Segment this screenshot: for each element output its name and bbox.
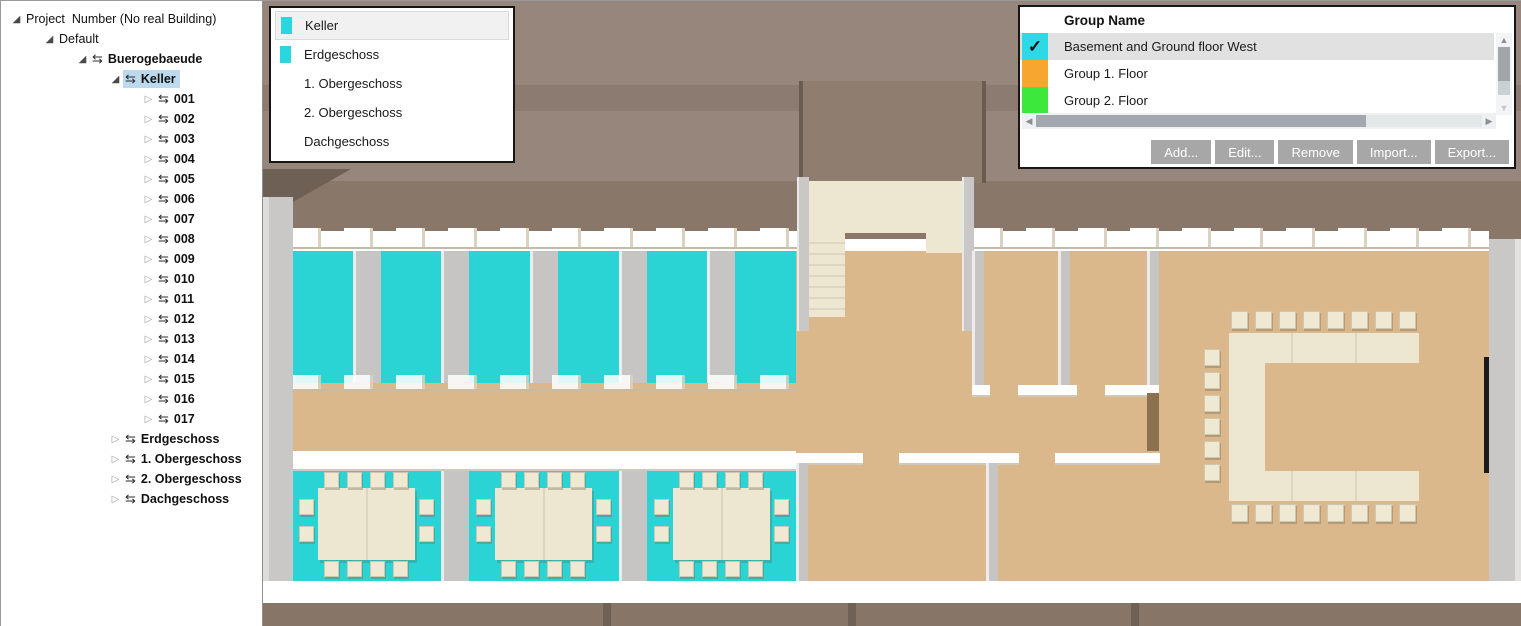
app-window: ◢Project Number (No real Building)◢Defau…: [0, 0, 1521, 626]
tree-item[interactable]: ▷⇆010: [1, 269, 262, 289]
tree-item[interactable]: ▷⇆Erdgeschoss: [1, 429, 262, 449]
chair: [1327, 504, 1344, 522]
tree-item-label: Project Number (No real Building): [26, 12, 216, 26]
tree-item-row[interactable]: ⇆006: [156, 190, 199, 208]
scroll-up-icon[interactable]: ▲: [1500, 33, 1509, 47]
tree-item-label: 007: [174, 212, 195, 226]
floor-label: 2. Obergeschoss: [304, 105, 402, 120]
conference-table: [1229, 471, 1419, 501]
chair: [1231, 504, 1248, 522]
right-exterior-wall: [1489, 239, 1521, 603]
tree-item-row[interactable]: Default: [57, 31, 103, 47]
swap-arrows-icon: ⇆: [158, 131, 169, 147]
staircase-steps: [809, 233, 845, 317]
chair: [1204, 372, 1220, 389]
floor-color-swatch: [280, 133, 291, 150]
collapsed-icon[interactable]: ▷: [108, 454, 123, 465]
swap-arrows-icon: ⇆: [92, 51, 103, 67]
floor-color-swatch: [280, 46, 291, 63]
tree-item-label: 2. Obergeschoss: [141, 472, 242, 486]
tree-item-row[interactable]: ⇆007: [156, 210, 199, 228]
wall: [441, 251, 469, 383]
vertical-scrollbar[interactable]: ▲ ▼: [1496, 33, 1512, 115]
wall: [353, 251, 381, 383]
chair: [596, 499, 611, 515]
chair: [1399, 311, 1416, 329]
tree-item-row[interactable]: ⇆Erdgeschoss: [123, 430, 223, 448]
chair: [347, 472, 362, 488]
swap-arrows-icon: ⇆: [158, 111, 169, 127]
project-tree: ◢Project Number (No real Building)◢Defau…: [1, 1, 263, 626]
tree-item[interactable]: ▷⇆009: [1, 249, 262, 269]
tree-item[interactable]: ◢⇆Keller: [1, 69, 262, 89]
tree-item-label: 002: [174, 112, 195, 126]
collapsed-icon[interactable]: ▷: [141, 234, 156, 245]
tree-item[interactable]: ▷⇆Dachgeschoss: [1, 489, 262, 509]
collapsed-icon[interactable]: ▷: [141, 94, 156, 105]
swap-arrows-icon: ⇆: [158, 271, 169, 287]
tree-item[interactable]: ▷⇆017: [1, 409, 262, 429]
chair: [748, 472, 763, 488]
tree-item-row[interactable]: ⇆Dachgeschoss: [123, 490, 233, 508]
tree-item-row[interactable]: ⇆Buerogebaeude: [90, 50, 206, 68]
swap-arrows-icon: ⇆: [158, 311, 169, 327]
scroll-right-icon[interactable]: ▶: [1482, 116, 1496, 127]
chair: [393, 472, 408, 488]
tree-item-label: Buerogebaeude: [108, 52, 202, 66]
expanded-icon[interactable]: ◢: [108, 74, 123, 85]
tree-item[interactable]: ▷⇆007: [1, 209, 262, 229]
expanded-icon[interactable]: ◢: [42, 34, 57, 45]
chair: [1279, 311, 1296, 329]
tree-item-label: Keller: [141, 72, 176, 86]
swap-arrows-icon: ⇆: [158, 151, 169, 167]
swap-arrows-icon: ⇆: [125, 431, 136, 447]
left-exterior-wall: [263, 197, 293, 613]
tree-item-label: 010: [174, 272, 195, 286]
collapsed-icon[interactable]: ▷: [108, 494, 123, 505]
chair: [1204, 464, 1220, 481]
chair: [1303, 311, 1320, 329]
room-highlighted[interactable]: [735, 251, 796, 383]
staircase-landing: [809, 181, 962, 233]
chair: [1303, 504, 1320, 522]
bottom-window-wall: [263, 581, 1521, 603]
chair: [1375, 311, 1392, 329]
tree-item[interactable]: ▷⇆015: [1, 369, 262, 389]
tree-item[interactable]: ◢⇆Buerogebaeude: [1, 49, 262, 69]
tree-item-label: 003: [174, 132, 195, 146]
group-label: Basement and Ground floor West: [1064, 39, 1257, 54]
chair: [774, 499, 789, 515]
door-opening: [1077, 385, 1105, 399]
door-opening: [863, 453, 899, 467]
chair: [679, 472, 694, 488]
tree-item-label: 017: [174, 412, 195, 426]
chair: [547, 472, 562, 488]
chair: [679, 561, 694, 577]
tree-item-label: 008: [174, 232, 195, 246]
chair: [324, 561, 339, 577]
collapsed-icon[interactable]: ▷: [141, 194, 156, 205]
import-button[interactable]: Import...: [1357, 140, 1431, 164]
swap-arrows-icon: ⇆: [125, 71, 136, 87]
chair: [1399, 504, 1416, 522]
swap-arrows-icon: ⇆: [158, 211, 169, 227]
tree-item-label: 005: [174, 172, 195, 186]
horizontal-scrollbar[interactable]: ◀ ▶: [1022, 113, 1496, 129]
tree-item[interactable]: ▷⇆001: [1, 89, 262, 109]
wall: [986, 463, 998, 581]
wall-seam: [848, 603, 856, 626]
wall: [619, 251, 647, 383]
chair: [774, 526, 789, 542]
chair: [476, 526, 491, 542]
tree-item-row[interactable]: ⇆2. Obergeschoss: [123, 470, 246, 488]
group-color-swatch: [1022, 60, 1048, 87]
tree-item-label: 015: [174, 372, 195, 386]
collapsed-icon[interactable]: ▷: [141, 374, 156, 385]
meeting-rooms-row: [292, 471, 796, 581]
edit-button[interactable]: Edit...: [1215, 140, 1274, 164]
meeting-table: [318, 488, 415, 560]
chair: [725, 561, 740, 577]
room-highlighted[interactable]: [292, 251, 353, 383]
chair: [1204, 349, 1220, 366]
expanded-icon[interactable]: ◢: [9, 14, 24, 25]
groups-panel: Group Name ✓Basement and Ground floor We…: [1018, 5, 1516, 169]
swap-arrows-icon: ⇆: [125, 491, 136, 507]
window-sills: [292, 228, 797, 249]
floor-color-swatch: [280, 104, 291, 121]
tree-item-label: 009: [174, 252, 195, 266]
chair: [1204, 441, 1220, 458]
tree-item-row[interactable]: ⇆014: [156, 350, 199, 368]
window-sills: [974, 228, 1489, 249]
tree-item-row[interactable]: ⇆015: [156, 370, 199, 388]
wall: [619, 471, 647, 581]
floor-color-swatch: [281, 17, 292, 34]
wall: [972, 251, 984, 391]
tree-item-row[interactable]: ⇆002: [156, 110, 199, 128]
add-button[interactable]: Add...: [1151, 140, 1211, 164]
chair: [1375, 504, 1392, 522]
swap-arrows-icon: ⇆: [158, 191, 169, 207]
tree-item-label: 006: [174, 192, 195, 206]
door-opening: [990, 385, 1018, 399]
tree-item-row[interactable]: ⇆003: [156, 130, 199, 148]
floor-list-item[interactable]: 1. Obergeschoss: [275, 69, 509, 98]
tree-item[interactable]: ▷⇆013: [1, 329, 262, 349]
wall: [797, 177, 809, 331]
tree-item-row[interactable]: ⇆1. Obergeschoss: [123, 450, 246, 468]
tree-item[interactable]: ▷⇆012: [1, 309, 262, 329]
tree-item[interactable]: ▷⇆011: [1, 289, 262, 309]
group-row[interactable]: Group 1. Floor: [1020, 60, 1494, 87]
chair: [419, 526, 434, 542]
tree-item-label: Erdgeschoss: [141, 432, 220, 446]
tree-item-row[interactable]: Project Number (No real Building): [24, 11, 220, 27]
swap-arrows-icon: ⇆: [158, 291, 169, 307]
meeting-table: [673, 488, 770, 560]
swap-arrows-icon: ⇆: [158, 411, 169, 427]
chair: [1351, 504, 1368, 522]
chair: [324, 472, 339, 488]
chair: [570, 561, 585, 577]
chair: [702, 561, 717, 577]
swap-arrows-icon: ⇆: [158, 171, 169, 187]
chair: [419, 499, 434, 515]
wall: [441, 471, 469, 581]
collapsed-icon[interactable]: ▷: [141, 214, 156, 225]
tree-item-label: Dachgeschoss: [141, 492, 229, 506]
tree-item-row[interactable]: ⇆013: [156, 330, 199, 348]
swap-arrows-icon: ⇆: [158, 351, 169, 367]
chair: [702, 472, 717, 488]
collapsed-icon[interactable]: ▷: [141, 354, 156, 365]
chair: [1255, 311, 1272, 329]
tree-item[interactable]: ▷⇆005: [1, 169, 262, 189]
collapsed-icon[interactable]: ▷: [141, 294, 156, 305]
corridor-sills: [292, 375, 797, 391]
scrollbar-thumb[interactable]: [1498, 47, 1510, 81]
collapsed-icon[interactable]: ▷: [141, 274, 156, 285]
wall: [707, 251, 735, 383]
collapsed-icon[interactable]: ▷: [141, 394, 156, 405]
chair: [654, 526, 669, 542]
floor-list-item[interactable]: Dachgeschoss: [275, 127, 509, 156]
meeting-room[interactable]: [647, 471, 796, 581]
door-threshold: [1147, 393, 1159, 451]
scrollbar-thumb[interactable]: [1036, 115, 1366, 127]
highlighted-rooms-row: [292, 251, 796, 383]
tree-item[interactable]: ◢Default: [1, 29, 262, 49]
tree-item[interactable]: ◢Project Number (No real Building): [1, 9, 262, 29]
tree-item-row[interactable]: ⇆009: [156, 250, 199, 268]
collapsed-icon[interactable]: ▷: [141, 154, 156, 165]
swap-arrows-icon: ⇆: [158, 251, 169, 267]
groups-header: Group Name: [1020, 7, 1514, 33]
group-row[interactable]: Group 2. Floor: [1020, 87, 1494, 114]
group-label: Group 1. Floor: [1064, 66, 1148, 81]
export-button[interactable]: Export...: [1435, 140, 1509, 164]
tree-item[interactable]: ▷⇆014: [1, 349, 262, 369]
chair: [1279, 504, 1296, 522]
swap-arrows-icon: ⇆: [125, 471, 136, 487]
swap-arrows-icon: ⇆: [158, 371, 169, 387]
wall-seam: [1131, 603, 1139, 626]
tree-item[interactable]: ▷⇆004: [1, 149, 262, 169]
floor-list-item[interactable]: Keller: [275, 11, 509, 40]
chair: [347, 561, 362, 577]
tree-item-row[interactable]: ⇆001: [156, 90, 199, 108]
scrollbar-track[interactable]: [1036, 115, 1482, 127]
chair: [1231, 311, 1248, 329]
wall: [292, 451, 796, 471]
group-row[interactable]: ✓Basement and Ground floor West: [1020, 33, 1494, 60]
tree-item-row[interactable]: ⇆010: [156, 270, 199, 288]
tree-item[interactable]: ▷⇆006: [1, 189, 262, 209]
chair: [654, 499, 669, 515]
meeting-table: [495, 488, 592, 560]
tree-item[interactable]: ▷⇆1. Obergeschoss: [1, 449, 262, 469]
chair: [1204, 418, 1220, 435]
collapsed-icon[interactable]: ▷: [141, 414, 156, 425]
tree-item-row[interactable]: ⇆011: [156, 290, 198, 308]
wall: [796, 453, 1160, 465]
floor-list-item[interactable]: Erdgeschoss: [275, 40, 509, 69]
floor-label: Erdgeschoss: [304, 47, 379, 62]
chair: [725, 472, 740, 488]
chair: [370, 472, 385, 488]
floor-label: 1. Obergeschoss: [304, 76, 402, 91]
room-highlighted[interactable]: [469, 251, 530, 383]
chair: [1255, 504, 1272, 522]
collapsed-icon[interactable]: ▷: [108, 474, 123, 485]
tree-item-row[interactable]: ⇆005: [156, 170, 199, 188]
scroll-left-icon[interactable]: ◀: [1022, 116, 1036, 127]
chair: [524, 561, 539, 577]
wall: [1058, 251, 1070, 391]
groups-list: ✓Basement and Ground floor WestGroup 1. …: [1020, 33, 1494, 114]
tree-item-label: 1. Obergeschoss: [141, 452, 242, 466]
floor-label: Dachgeschoss: [304, 134, 389, 149]
tree-item-label: 012: [174, 312, 195, 326]
chair: [1351, 311, 1368, 329]
expanded-icon[interactable]: ◢: [75, 54, 90, 65]
collapsed-icon[interactable]: ▷: [141, 174, 156, 185]
scroll-down-icon[interactable]: ▼: [1500, 101, 1509, 115]
collapsed-icon[interactable]: ▷: [141, 114, 156, 125]
chair: [596, 526, 611, 542]
meeting-room[interactable]: [292, 471, 441, 581]
chair: [1204, 395, 1220, 412]
floor-selector-panel: KellerErdgeschoss1. Obergeschoss2. Oberg…: [269, 6, 515, 163]
chair: [547, 561, 562, 577]
tree-item[interactable]: ▷⇆002: [1, 109, 262, 129]
swap-arrows-icon: ⇆: [158, 331, 169, 347]
groups-buttons: Add...Edit...RemoveImport...Export...: [1151, 140, 1509, 164]
tree-item-label: 014: [174, 352, 195, 366]
swap-arrows-icon: ⇆: [158, 391, 169, 407]
tree-item-row[interactable]: ⇆017: [156, 410, 199, 428]
chair: [370, 561, 385, 577]
chair: [299, 499, 314, 515]
scrollbar-shade: [1498, 81, 1510, 95]
chair: [1327, 311, 1344, 329]
remove-button[interactable]: Remove: [1278, 140, 1352, 164]
room-highlighted[interactable]: [558, 251, 619, 383]
tree-item-row[interactable]: ⇆004: [156, 150, 199, 168]
tree-item-label: 001: [174, 92, 195, 106]
chair: [299, 526, 314, 542]
room-highlighted[interactable]: [647, 251, 708, 383]
check-icon: ✓: [1028, 37, 1042, 57]
tree-item-label: 004: [174, 152, 195, 166]
swap-arrows-icon: ⇆: [158, 231, 169, 247]
group-label: Group 2. Floor: [1064, 93, 1148, 108]
chair: [524, 472, 539, 488]
stairwell-shaft: [799, 81, 986, 183]
collapsed-icon[interactable]: ▷: [141, 254, 156, 265]
tree-item-row[interactable]: ⇆Keller: [123, 70, 180, 88]
chair: [570, 472, 585, 488]
swap-arrows-icon: ⇆: [158, 91, 169, 107]
tree-item[interactable]: ▷⇆003: [1, 129, 262, 149]
group-color-swatch: [1022, 87, 1048, 114]
tree-item-label: 016: [174, 392, 195, 406]
collapsed-icon[interactable]: ▷: [108, 434, 123, 445]
collapsed-icon[interactable]: ▷: [141, 134, 156, 145]
chair: [476, 499, 491, 515]
staircase-landing: [926, 233, 962, 253]
tree-item-label: 011: [174, 292, 194, 306]
floor-color-swatch: [280, 75, 291, 92]
floor-list-item[interactable]: 2. Obergeschoss: [275, 98, 509, 127]
tree-item-row[interactable]: ⇆016: [156, 390, 199, 408]
wall: [530, 251, 558, 383]
door-opening: [1019, 453, 1055, 467]
3d-viewport[interactable]: KellerErdgeschoss1. Obergeschoss2. Oberg…: [263, 1, 1521, 626]
floor-label: Keller: [305, 18, 338, 33]
collapsed-icon[interactable]: ▷: [141, 334, 156, 345]
chair: [748, 561, 763, 577]
tree-item-row[interactable]: ⇆012: [156, 310, 199, 328]
meeting-room[interactable]: [469, 471, 618, 581]
wall-seam: [603, 603, 611, 626]
room-highlighted[interactable]: [381, 251, 442, 383]
wall: [796, 463, 808, 581]
swap-arrows-icon: ⇆: [125, 451, 136, 467]
tree-item[interactable]: ▷⇆2. Obergeschoss: [1, 469, 262, 489]
tree-item[interactable]: ▷⇆008: [1, 229, 262, 249]
bottom-exterior-band: [263, 603, 1521, 626]
chair: [393, 561, 408, 577]
chair: [501, 472, 516, 488]
wall: [1147, 251, 1159, 391]
tree-item-label: 013: [174, 332, 195, 346]
tree-item-row[interactable]: ⇆008: [156, 230, 199, 248]
collapsed-icon[interactable]: ▷: [141, 314, 156, 325]
tree-item-label: Default: [59, 32, 99, 46]
group-color-swatch: ✓: [1022, 33, 1048, 60]
chair: [501, 561, 516, 577]
tree-item[interactable]: ▷⇆016: [1, 389, 262, 409]
